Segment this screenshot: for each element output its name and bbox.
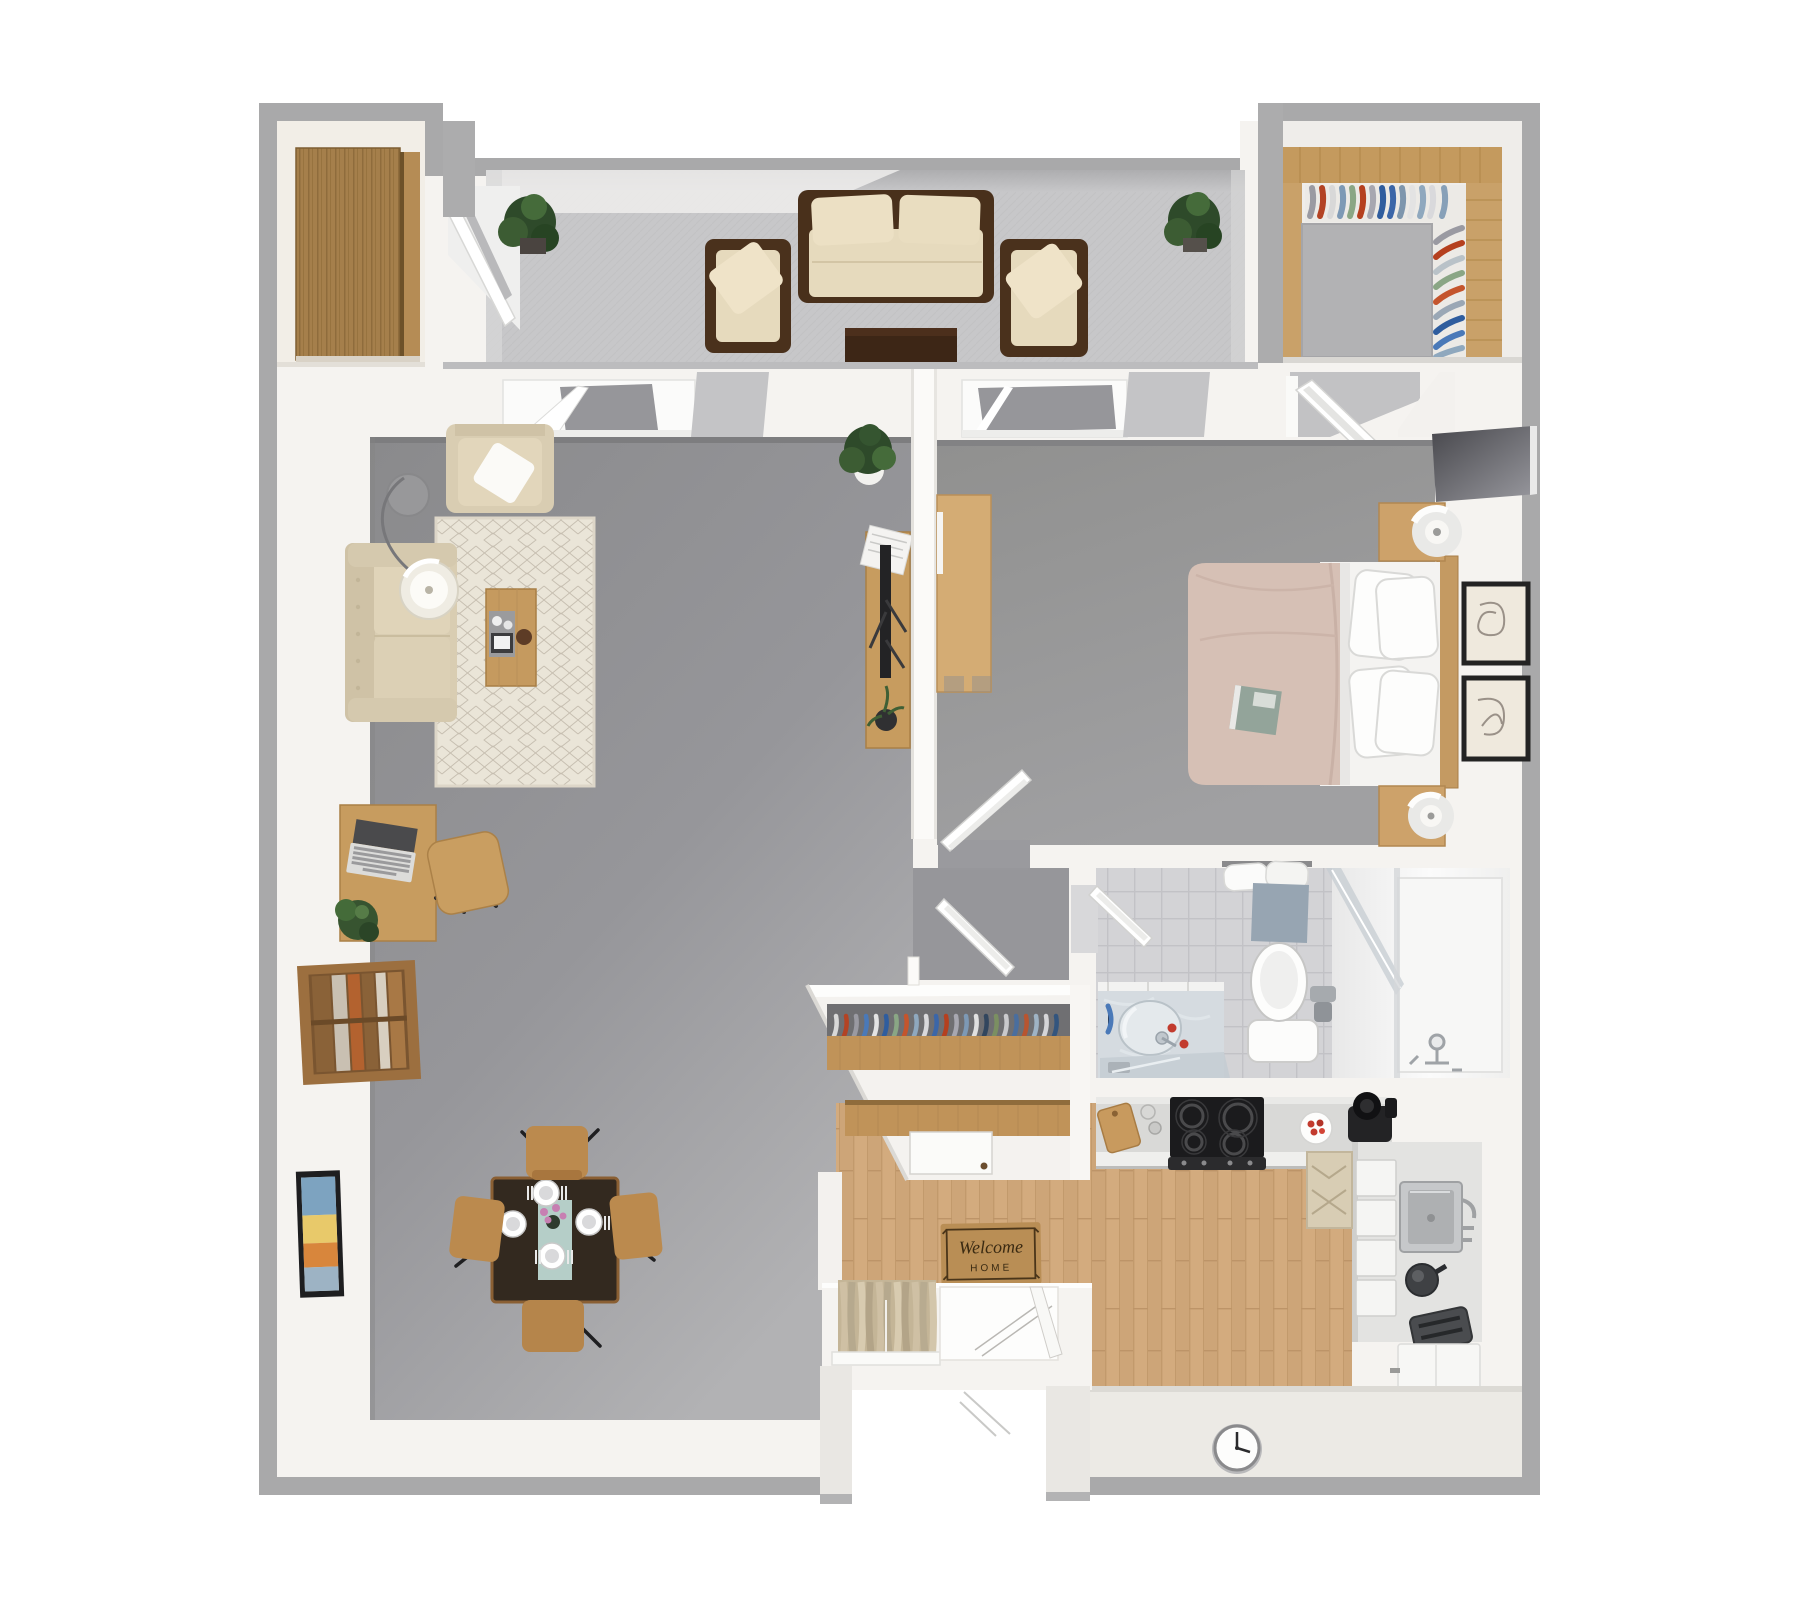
svg-text:HOME: HOME [970,1263,1012,1275]
svg-text:Welcome: Welcome [959,1236,1024,1257]
